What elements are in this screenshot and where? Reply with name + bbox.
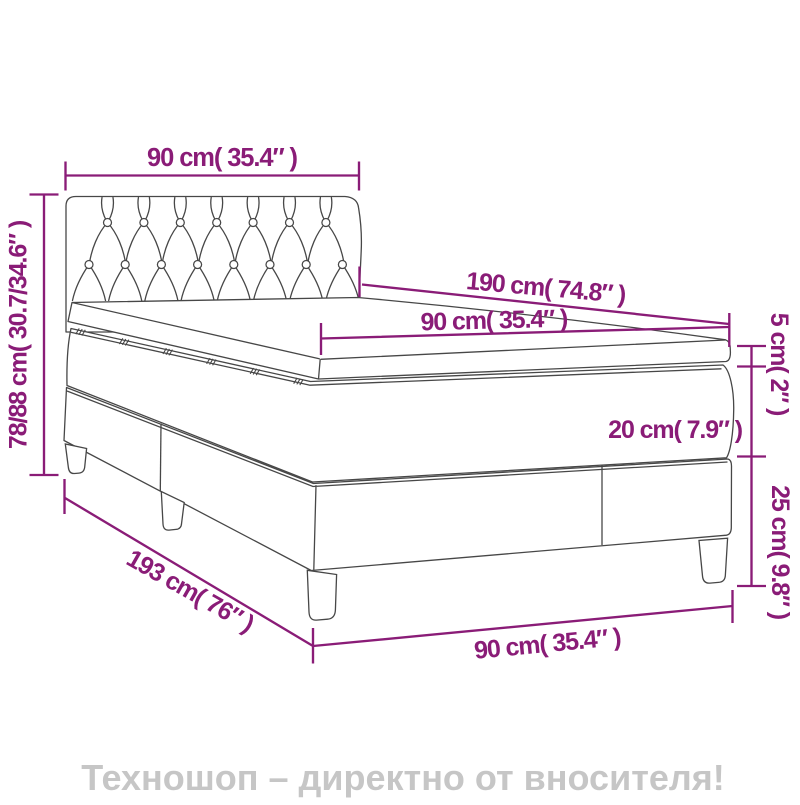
svg-text:90 cm( 35.4″ ): 90 cm( 35.4″ ) bbox=[420, 305, 568, 337]
svg-text:20 cm( 7.9″ ): 20 cm( 7.9″ ) bbox=[608, 416, 743, 444]
svg-text:90 cm( 35.4″ ): 90 cm( 35.4″ ) bbox=[147, 144, 298, 172]
svg-text:78/88 cm( 30.7/34.6″ ): 78/88 cm( 30.7/34.6″ ) bbox=[5, 220, 33, 449]
svg-text:5 cm( 2″ ): 5 cm( 2″ ) bbox=[765, 313, 793, 416]
svg-text:Техношоп – директно от вносите: Техношоп – директно от вносителя! bbox=[81, 757, 724, 798]
svg-text:25 cm( 9.8″ ): 25 cm( 9.8″ ) bbox=[766, 485, 794, 620]
